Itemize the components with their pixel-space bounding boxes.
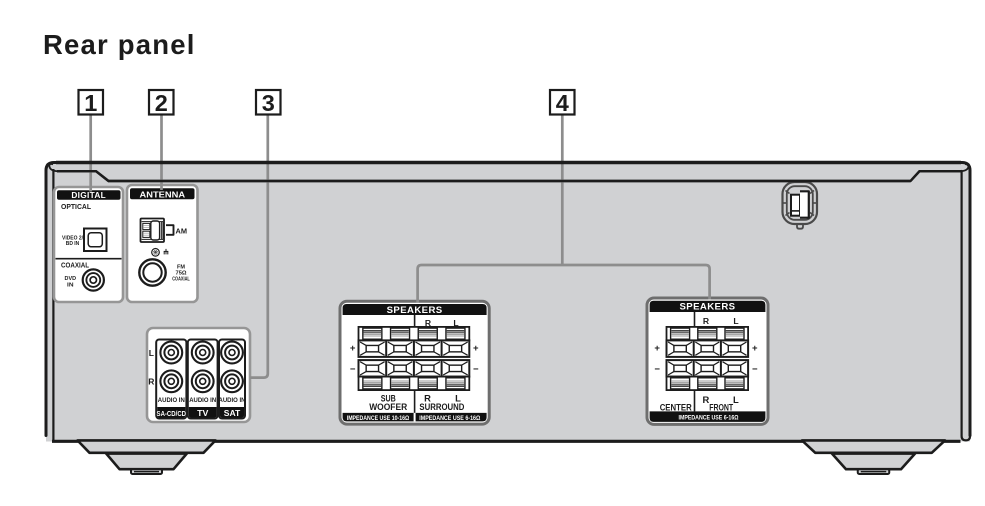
svg-text:CENTER: CENTER [660,402,692,413]
svg-text:SA-CD/CD: SA-CD/CD [157,411,187,418]
svg-text:Rear panel: Rear panel [43,29,196,60]
svg-text:3: 3 [262,90,275,116]
svg-text:TV: TV [197,408,209,418]
svg-text:SPEAKERS: SPEAKERS [680,302,736,313]
svg-text:IMPEDANCE USE 6-16Ω: IMPEDANCE USE 6-16Ω [679,414,739,421]
svg-text:L: L [149,348,154,358]
svg-text:−: − [752,364,758,375]
svg-text:IMPEDANCE USE 6-16Ω: IMPEDANCE USE 6-16Ω [419,415,480,422]
svg-text:BD IN: BD IN [66,241,80,247]
svg-text:WOOFER: WOOFER [369,401,407,412]
svg-text:FRONT: FRONT [709,402,733,413]
svg-text:+: + [654,343,660,354]
svg-text:2: 2 [155,90,168,116]
svg-text:IN: IN [67,283,74,289]
svg-text:−: − [350,364,356,375]
svg-text:4: 4 [556,90,569,116]
svg-text:SPEAKERS: SPEAKERS [387,305,443,316]
svg-text:+: + [752,343,758,354]
svg-text:AM: AM [176,227,188,236]
svg-text:AUDIO IN: AUDIO IN [219,397,246,404]
svg-text:+: + [350,343,356,354]
svg-text:COAXIAL: COAXIAL [61,262,89,269]
svg-text:−: − [473,364,479,375]
svg-text:SURROUND: SURROUND [419,401,464,412]
svg-text:+: + [473,343,479,354]
svg-text:−: − [654,364,660,375]
svg-text:DIGITAL: DIGITAL [71,190,106,200]
svg-text:AUDIO IN: AUDIO IN [189,397,216,404]
svg-text:1: 1 [84,90,97,116]
svg-text:R: R [703,316,710,326]
svg-text:SAT: SAT [224,408,241,418]
svg-text:COAXIAL: COAXIAL [172,277,190,283]
svg-text:AUDIO IN: AUDIO IN [158,397,185,404]
svg-text:DVD: DVD [65,276,77,282]
svg-text:IMPEDANCE USE 10-16Ω: IMPEDANCE USE 10-16Ω [347,415,410,422]
svg-text:ANTENNA: ANTENNA [140,190,186,200]
svg-text:L: L [733,394,739,405]
svg-text:L: L [733,316,738,326]
svg-text:OPTICAL: OPTICAL [61,204,91,211]
svg-text:R: R [148,377,154,387]
